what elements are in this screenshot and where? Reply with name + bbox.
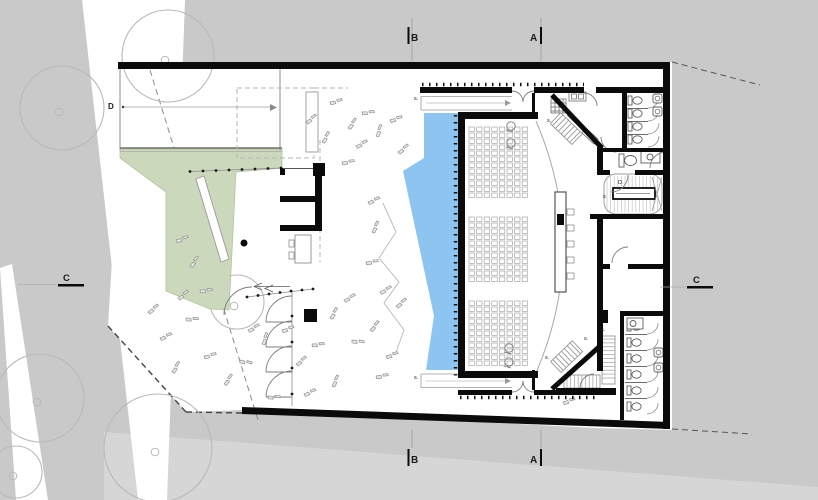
auditorium-seat [484,145,489,149]
toilet-icon [627,402,631,411]
stair-label: s. [414,96,419,102]
auditorium-seat [477,277,482,281]
auditorium-seat [499,241,504,245]
auditorium-seat [477,265,482,269]
auditorium-seat [507,223,512,227]
auditorium-seat [507,163,512,167]
chair [567,273,574,279]
auditorium-seat [499,265,504,269]
facade-post [254,168,257,171]
auditorium-seat [499,193,504,197]
auditorium-seat [469,175,474,179]
section-marker-b-top: B [411,33,418,44]
auditorium-seat [492,229,497,233]
auditorium-seat [492,253,497,257]
facade-post [291,393,294,396]
auditorium-seat [515,319,520,323]
auditorium-seat [492,151,497,155]
stair-label: s. [414,375,419,381]
auditorium-seat [469,355,474,359]
auditorium-seat [499,145,504,149]
auditorium-seat [469,145,474,149]
auditorium-seat [522,139,527,143]
auditorium-seat [484,235,489,239]
auditorium-seat [499,271,504,275]
auditorium-seat [507,181,512,185]
sink-icon [653,94,662,103]
stair-label: s. [545,355,550,361]
auditorium-seat [492,145,497,149]
facade-post [290,290,293,293]
auditorium-seat [522,157,527,161]
auditorium-seat [507,229,512,233]
auditorium-seat [484,337,489,341]
auditorium-seat [499,169,504,173]
auditorium-seat [492,139,497,143]
auditorium-seat [477,181,482,185]
auditorium-seat [507,271,512,275]
auditorium-seat [469,169,474,173]
auditorium-seat [499,247,504,251]
auditorium-seat [522,265,527,269]
auditorium-seat [515,337,520,341]
auditorium-seat [492,127,497,131]
section-marker-c-right: C [693,275,700,286]
auditorium-seat [507,325,512,329]
auditorium-wall-bottom [458,371,538,378]
auditorium-seat [515,253,520,257]
toilet-icon [627,386,631,395]
auditorium-seat [507,259,512,263]
sink-icon [654,363,663,372]
auditorium-seat [515,241,520,245]
auditorium-wall-west [458,112,465,378]
auditorium-seat [522,343,527,347]
column [557,214,564,225]
auditorium-seat [522,355,527,359]
auditorium-seat [515,331,520,335]
auditorium-seat [477,229,482,233]
auditorium-seat [469,235,474,239]
auditorium-seat [469,337,474,341]
auditorium-seat [484,247,489,251]
auditorium-seat [522,307,527,311]
auditorium-seat [484,181,489,185]
auditorium-seat [477,247,482,251]
auditorium-seat [469,241,474,245]
toilet-icon [632,371,641,378]
auditorium-seat [469,253,474,257]
toilet-icon [627,370,631,379]
auditorium-seat [507,337,512,341]
stair-label: s. [557,380,562,386]
floor-plan: B A B A C C D s.s.s.s.s.s.sD.s. [0,0,818,500]
auditorium-seat [492,169,497,173]
auditorium-seat [522,163,527,167]
auditorium-seat [492,223,497,227]
auditorium-seat [515,277,520,281]
auditorium-seat [484,175,489,179]
auditorium-seat [507,193,512,197]
auditorium-seat [477,235,482,239]
auditorium-seat [507,253,512,257]
auditorium-seat [499,133,504,137]
section-marker-c-left: C [63,273,70,284]
auditorium-seat [469,181,474,185]
auditorium-seat [484,277,489,281]
auditorium-seat [515,235,520,239]
auditorium-seat [484,307,489,311]
auditorium-seat [499,253,504,257]
auditorium-seat [515,151,520,155]
auditorium-seat [499,349,504,353]
auditorium-seat [469,163,474,167]
auditorium-seat [477,163,482,167]
facade-post [189,170,192,173]
stair-label: s. [601,327,606,333]
auditorium-seat [522,349,527,353]
section-marker-a-top: A [530,33,537,44]
facade-post [246,296,249,299]
auditorium-seat [484,343,489,347]
auditorium-seat [522,271,527,275]
auditorium-seat [499,259,504,263]
auditorium-seat [522,301,527,305]
auditorium-seat [469,127,474,131]
auditorium-seat [477,241,482,245]
auditorium-seat [522,235,527,239]
floor-plan-canvas: B A B A C C D s.s.s.s.s.s.sD.s. [0,0,818,500]
auditorium-seat [515,361,520,365]
chair [567,241,574,247]
auditorium-seat [484,151,489,155]
auditorium-seat [469,277,474,281]
auditorium-seat [507,133,512,137]
auditorium-seat [522,259,527,263]
auditorium-seat [507,235,512,239]
auditorium-seat [522,331,527,335]
auditorium-seat [507,187,512,191]
auditorium-seat [515,325,520,329]
auditorium-seat [484,265,489,269]
auditorium-seat [477,145,482,149]
auditorium-seat [469,193,474,197]
toilet-icon [633,97,642,104]
facade-post [291,367,294,370]
head-table [555,192,566,292]
facade-post [257,294,260,297]
auditorium-seat [507,247,512,251]
auditorium-seat [507,265,512,269]
auditorium-seat [492,277,497,281]
auditorium-seat [492,349,497,353]
auditorium-seat [515,163,520,167]
auditorium-seat [469,331,474,335]
auditorium-seat [469,349,474,353]
auditorium-seat [507,175,512,179]
auditorium-seat [477,151,482,155]
auditorium-seat [484,157,489,161]
auditorium-seat [499,343,504,347]
facade-post [312,288,315,291]
auditorium-seat [522,337,527,341]
auditorium-seat [469,229,474,233]
auditorium-seat [507,319,512,323]
facade-post [279,291,282,294]
auditorium-seat [515,187,520,191]
auditorium-seat [499,235,504,239]
auditorium-seat [522,133,527,137]
auditorium-seat [507,241,512,245]
toilet-icon [633,123,642,130]
auditorium-seat [492,133,497,137]
auditorium-seat [484,301,489,305]
auditorium-seat [499,319,504,323]
facade-post [215,169,218,172]
auditorium-seat [515,313,520,317]
auditorium-seat [469,259,474,263]
auditorium-seat [477,343,482,347]
stair-label: s [603,194,606,200]
auditorium-seat [477,253,482,257]
auditorium-seat [477,331,482,335]
auditorium-seat [522,193,527,197]
auditorium-seat [492,319,497,323]
auditorium-seat [522,253,527,257]
detail-marker-d: D [108,102,114,111]
auditorium-seat [522,361,527,365]
auditorium-seat [499,337,504,341]
auditorium-seat [492,235,497,239]
auditorium-seat [469,157,474,161]
auditorium-seat [492,355,497,359]
auditorium-seat [492,307,497,311]
auditorium-seat [477,223,482,227]
auditorium-seat [499,229,504,233]
facade-post [301,289,304,292]
auditorium-seat [492,157,497,161]
auditorium-seat [477,259,482,263]
auditorium-seat [484,325,489,329]
auditorium-seat [499,331,504,335]
auditorium-seat [469,187,474,191]
toilet-icon [632,403,641,410]
facade-post [202,170,205,173]
auditorium-seat [522,247,527,251]
auditorium-seat [492,247,497,251]
auditorium-seat [499,175,504,179]
auditorium-seat [515,271,520,275]
auditorium-seat [515,181,520,185]
auditorium-seat [499,157,504,161]
auditorium-seat [515,193,520,197]
auditorium-seat [477,361,482,365]
auditorium-seat [492,265,497,269]
section-marker-a-bottom: A [530,455,537,466]
auditorium-seat [492,163,497,167]
auditorium-seat [515,175,520,179]
auditorium-seat [515,229,520,233]
facade-post [291,341,294,344]
auditorium-seat [469,247,474,251]
restroom-bottom-basin [627,318,643,329]
auditorium-seat [469,133,474,137]
auditorium-seat [484,319,489,323]
toilet-icon [628,135,632,144]
auditorium-seat [469,361,474,365]
auditorium-seat [484,331,489,335]
auditorium-seat [492,175,497,179]
auditorium-seat [499,277,504,281]
auditorium-seat [477,133,482,137]
auditorium-seat [477,139,482,143]
auditorium-seat [515,265,520,269]
auditorium-seat [469,301,474,305]
section-marker-b-bottom: B [411,455,418,466]
facade-post [267,167,270,170]
auditorium-seat [469,265,474,269]
auditorium-seat [477,307,482,311]
auditorium-seat [477,193,482,197]
auditorium-seat [522,151,527,155]
auditorium-seat [507,217,512,221]
facade-post [241,168,244,171]
chair [567,209,574,215]
auditorium-seat [515,145,520,149]
auditorium-seat [484,271,489,275]
auditorium-seat [522,169,527,173]
auditorium-seat [477,169,482,173]
auditorium-seat [522,277,527,281]
auditorium-seat [469,223,474,227]
auditorium-seat [522,313,527,317]
auditorium-seat [515,223,520,227]
auditorium-seat [499,223,504,227]
stair-label: D. [618,180,624,186]
auditorium-seat [492,301,497,305]
auditorium-seat [469,139,474,143]
toilet-icon [633,110,642,117]
auditorium-seat [515,247,520,251]
auditorium-seat [477,337,482,341]
auditorium-seat [499,355,504,359]
auditorium-seat [484,223,489,227]
auditorium-seat [515,127,520,131]
auditorium-seat [492,325,497,329]
auditorium-seat [477,313,482,317]
auditorium-seat [484,163,489,167]
auditorium-seat [507,277,512,281]
auditorium-seat [469,271,474,275]
auditorium-seat [484,349,489,353]
auditorium-seat [484,253,489,257]
auditorium-seat [507,313,512,317]
auditorium-seat [515,133,520,137]
auditorium-seat [499,181,504,185]
auditorium-seat [507,307,512,311]
auditorium-seat [499,187,504,191]
auditorium-seat [499,313,504,317]
auditorium-seat [515,169,520,173]
wall-north [118,62,670,69]
auditorium-seat [492,343,497,347]
chair [567,257,574,263]
toilet-icon [628,122,632,131]
facade-post [291,315,294,318]
auditorium-seat [522,229,527,233]
auditorium-seat [499,307,504,311]
auditorium-seat [484,313,489,317]
auditorium-seat [484,355,489,359]
auditorium-seat [477,319,482,323]
auditorium-seat [515,259,520,263]
auditorium-seat [522,181,527,185]
auditorium-seat [507,331,512,335]
auditorium-seat [492,193,497,197]
wall-east [663,62,670,429]
auditorium-seat [492,331,497,335]
auditorium-seat [522,175,527,179]
auditorium-wall-top [458,112,538,119]
stair-label: s. [547,118,552,124]
auditorium-seat [492,241,497,245]
column [597,310,608,323]
auditorium-seat [499,361,504,365]
auditorium-seat [499,127,504,131]
auditorium-seat [469,151,474,155]
auditorium-seat [484,217,489,221]
auditorium-seat [492,313,497,317]
auditorium-seat [522,319,527,323]
auditorium-seat [522,223,527,227]
toilet-icon [633,136,642,143]
auditorium-seat [469,307,474,311]
auditorium-seat [484,139,489,143]
auditorium-seat [492,361,497,365]
auditorium-seat [507,301,512,305]
auditorium-seat [484,127,489,131]
sink-icon [653,107,662,116]
auditorium-seat [522,145,527,149]
stair-label: s. [584,336,589,342]
auditorium-seat [484,229,489,233]
chair [567,225,574,231]
toilet-icon [628,96,632,105]
auditorium-seat [499,139,504,143]
auditorium-seat [477,127,482,131]
auditorium-seat [492,259,497,263]
auditorium-seat [507,151,512,155]
auditorium-seat [477,325,482,329]
facade-post [228,169,231,172]
auditorium-seat [492,337,497,341]
auditorium-seat [477,157,482,161]
structural-column-dot [241,240,248,247]
toilet-icon [627,338,631,347]
auditorium-seat [484,187,489,191]
auditorium-seat [499,151,504,155]
auditorium-seat [492,181,497,185]
auditorium-seat [522,217,527,221]
auditorium-seat [477,349,482,353]
auditorium-seat [507,157,512,161]
auditorium-seat [484,241,489,245]
auditorium-seat [515,355,520,359]
sink-icon [654,348,663,357]
main-stair-core [604,174,662,214]
auditorium-seat [522,127,527,131]
auditorium-seat [469,313,474,317]
